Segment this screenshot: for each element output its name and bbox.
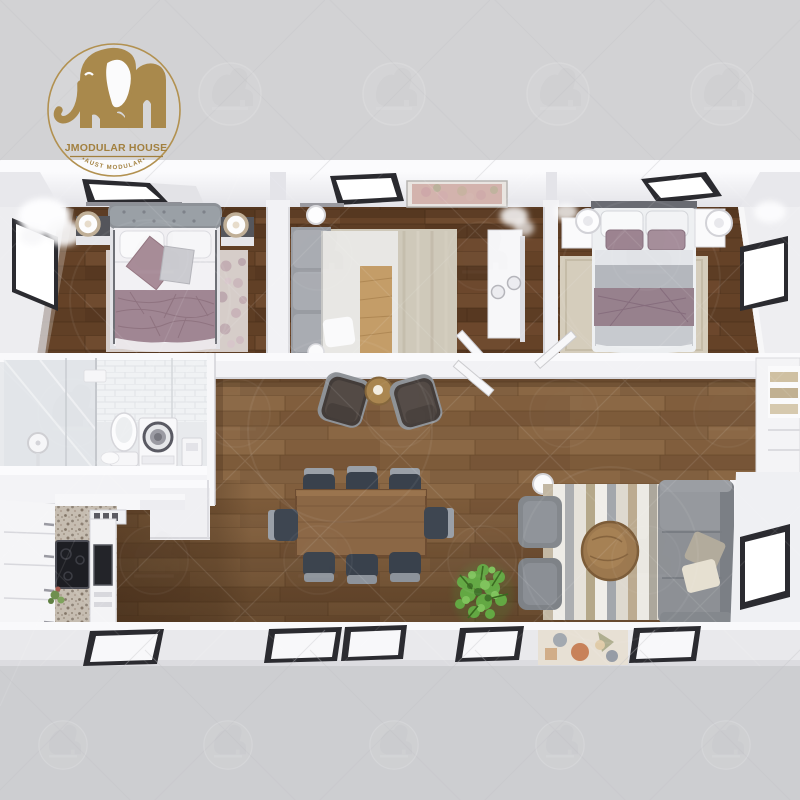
svg-text:JMODULAR HOUSE: JMODULAR HOUSE <box>65 142 168 154</box>
